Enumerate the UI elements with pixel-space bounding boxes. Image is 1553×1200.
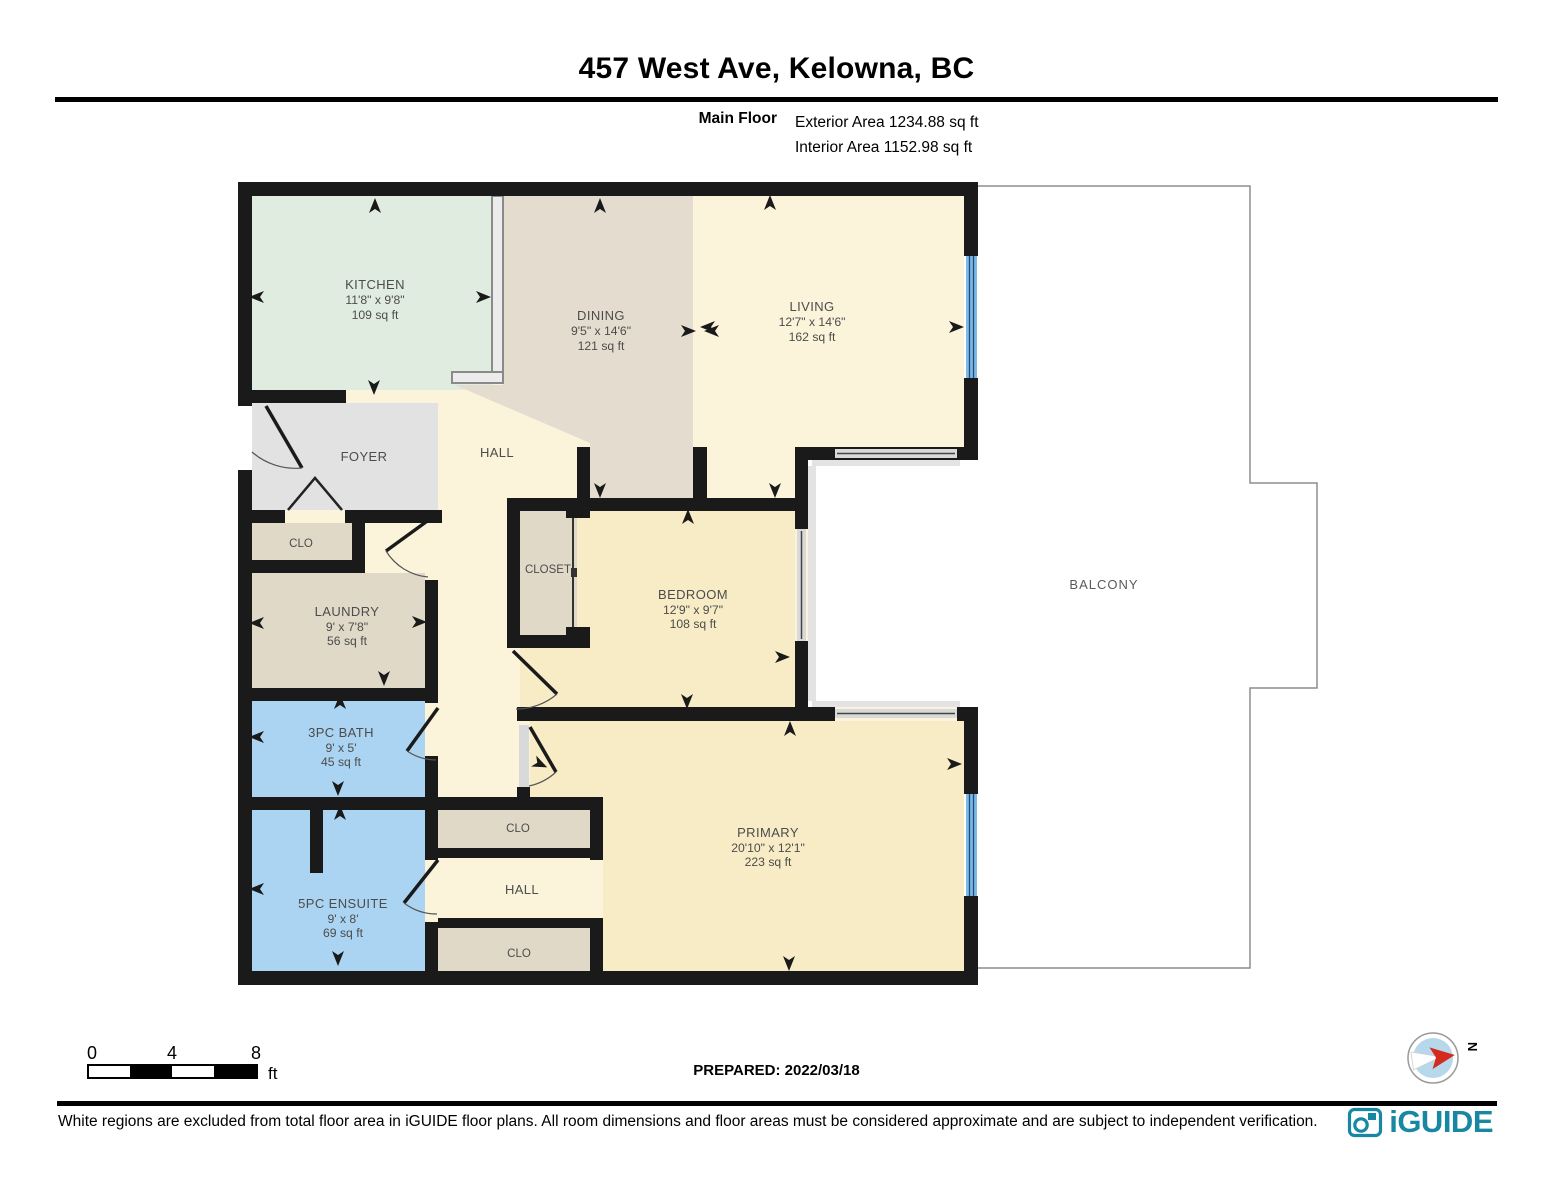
disclaimer-text: White regions are excluded from total fl…: [58, 1113, 1358, 1131]
bedroom-closet-label: CLOSET: [525, 564, 571, 576]
laundry-label: LAUNDRY: [315, 604, 380, 619]
iguide-wordmark: iGUIDE: [1389, 1104, 1493, 1140]
compass-north-label: N: [1465, 1042, 1480, 1051]
dining-label: DINING: [577, 308, 625, 323]
living-label: LIVING: [789, 299, 834, 314]
iguide-camera-icon: [1347, 1106, 1383, 1138]
primary-dims: 20'10" x 12'1": [731, 841, 805, 855]
bedroom-dims: 12'9" x 9'7": [663, 603, 723, 617]
scale-tick-0: 0: [87, 1043, 97, 1063]
bedroom-label: BEDROOM: [658, 587, 728, 602]
living-area: 162 sq ft: [789, 330, 836, 344]
floor-plan-page: 457 West Ave, Kelowna, BC Main Floor Ext…: [0, 0, 1553, 1200]
ensuite-label: 5PC ENSUITE: [298, 896, 388, 911]
living-window: [966, 256, 977, 378]
foyer-label: FOYER: [341, 449, 388, 464]
bath-dims: 9' x 5': [325, 741, 356, 755]
scale-tick-4: 4: [167, 1043, 177, 1063]
hall-lower-label: HALL: [505, 882, 539, 897]
prepared-date: PREPARED: 2022/03/18: [0, 1062, 1553, 1079]
balcony-threshold-bottom: [812, 701, 960, 707]
laundry-area: 56 sq ft: [327, 634, 368, 648]
ensuite-dims: 9' x 8': [327, 912, 358, 926]
balcony-threshold-top: [812, 460, 960, 466]
dining-area: 121 sq ft: [578, 339, 625, 353]
living-dims: 12'7" x 14'6": [779, 315, 846, 329]
clo-foyer-label: CLO: [289, 538, 313, 550]
primary-label: PRIMARY: [737, 825, 799, 840]
ensuite-floor: [252, 810, 425, 971]
balcony-threshold-side: [808, 466, 816, 701]
hall-upper-label: HALL: [480, 445, 514, 460]
iguide-logo: iGUIDE: [1347, 1104, 1493, 1140]
kitchen-dims: 11'8" x 9'8": [345, 293, 404, 307]
scale-tick-8: 8: [251, 1043, 261, 1063]
primary-window: [966, 794, 977, 896]
floor-plan-drawing: KITCHEN 11'8" x 9'8" 109 sq ft DINING 9'…: [0, 0, 1553, 1200]
balcony-outline: [978, 186, 1317, 968]
balcony-label: BALCONY: [1069, 577, 1138, 592]
footer-rule: [57, 1101, 1497, 1106]
laundry-dims: 9' x 7'8": [326, 620, 368, 634]
bath-label: 3PC BATH: [308, 725, 374, 740]
kitchen-area: 109 sq ft: [352, 308, 399, 322]
primary-area: 223 sq ft: [745, 855, 792, 869]
balcony-inset: [808, 460, 964, 707]
clo-top-label: CLO: [506, 823, 530, 835]
dining-dims: 9'5" x 14'6": [571, 324, 631, 338]
bath-area: 45 sq ft: [321, 755, 362, 769]
kitchen-label: KITCHEN: [345, 277, 405, 292]
ensuite-area: 69 sq ft: [323, 926, 364, 940]
bedroom-area: 108 sq ft: [670, 617, 717, 631]
windows: [966, 256, 977, 896]
clo-bottom-label: CLO: [507, 948, 531, 960]
